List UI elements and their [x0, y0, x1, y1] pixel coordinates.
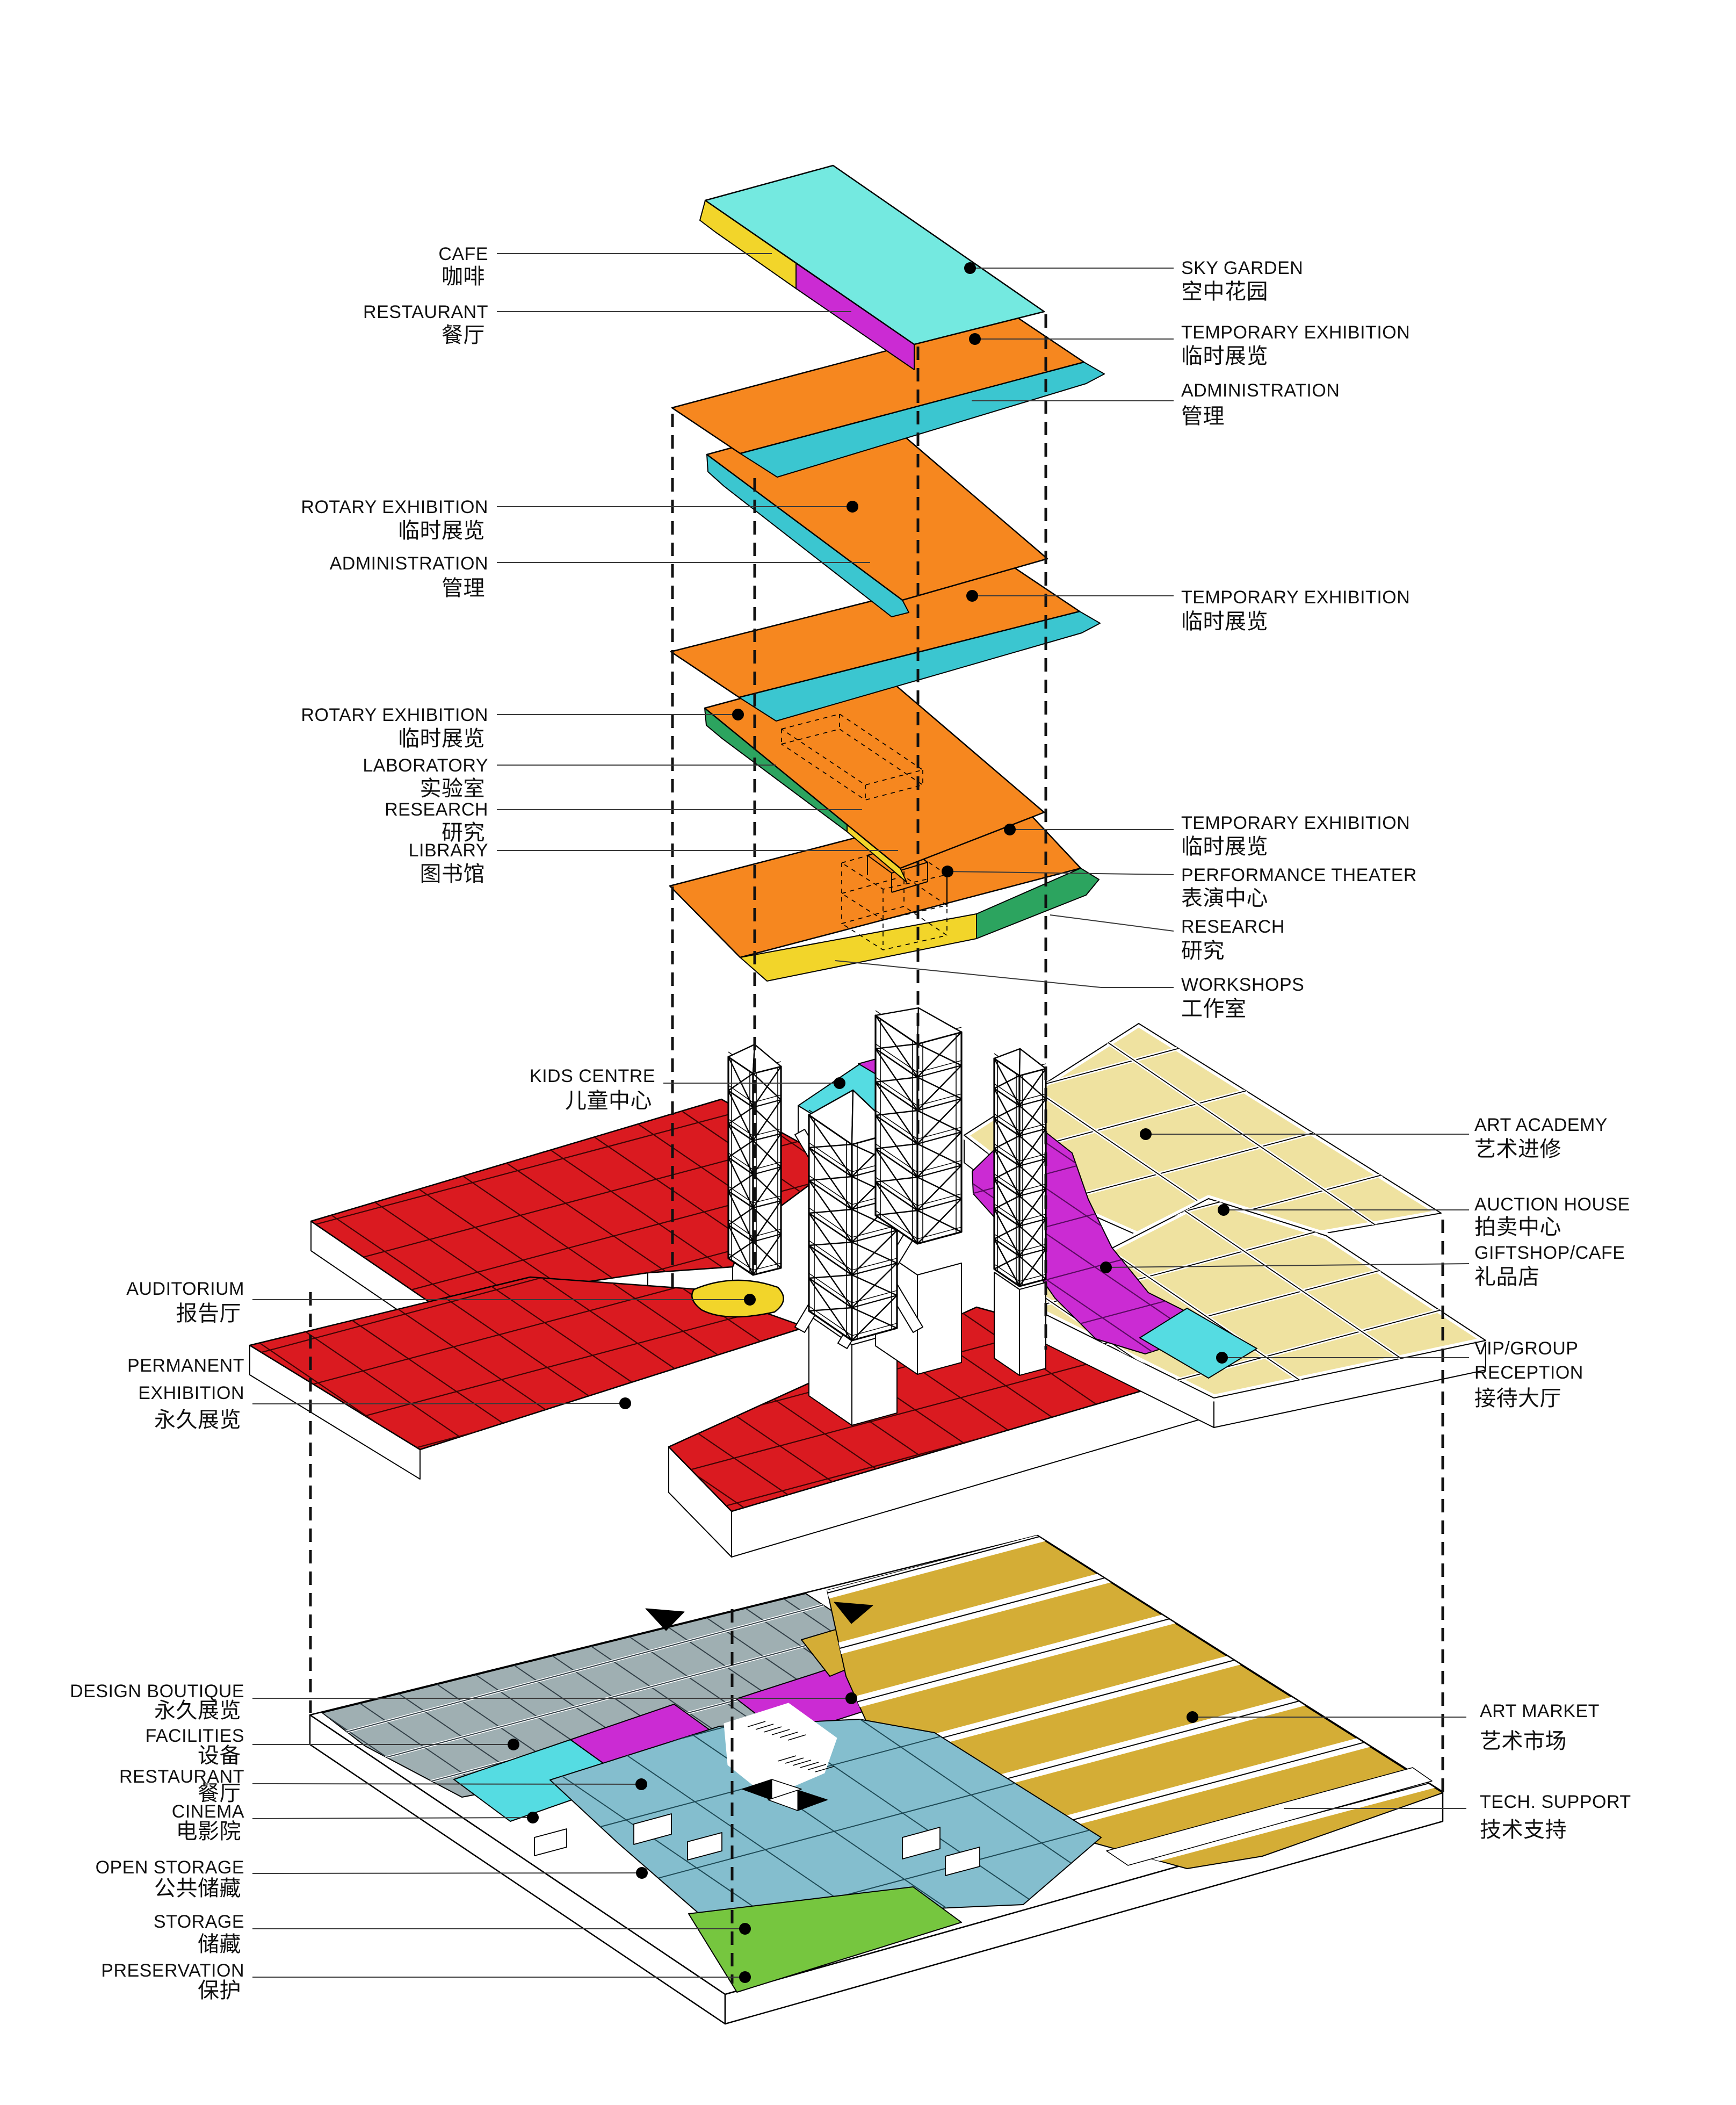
svg-text:临时展览: 临时展览: [1181, 835, 1268, 859]
svg-text:PERFORMANCE THEATER: PERFORMANCE THEATER: [1181, 865, 1417, 885]
svg-text:LIBRARY: LIBRARY: [409, 840, 488, 861]
svg-text:AUCTION HOUSE: AUCTION HOUSE: [1474, 1194, 1630, 1215]
svg-text:电影院: 电影院: [176, 1820, 242, 1843]
svg-text:KIDS CENTRE: KIDS CENTRE: [530, 1066, 655, 1086]
svg-text:艺术进修: 艺术进修: [1474, 1137, 1561, 1161]
svg-text:RESTAURANT: RESTAURANT: [363, 302, 488, 322]
svg-text:PERMANENT: PERMANENT: [127, 1356, 244, 1376]
svg-text:报告厅: 报告厅: [176, 1302, 242, 1325]
svg-text:TEMPORARY EXHIBITION: TEMPORARY EXHIBITION: [1181, 322, 1410, 343]
svg-text:咖啡: 咖啡: [442, 265, 485, 289]
svg-text:儿童中心: 儿童中心: [565, 1089, 652, 1113]
svg-text:RESEARCH: RESEARCH: [1181, 917, 1285, 937]
svg-text:ART ACADEMY: ART ACADEMY: [1474, 1115, 1608, 1135]
svg-text:FACILITIES: FACILITIES: [146, 1726, 245, 1746]
svg-text:RESEARCH: RESEARCH: [385, 799, 488, 820]
svg-text:拍卖中心: 拍卖中心: [1474, 1215, 1561, 1239]
svg-text:AUDITORIUM: AUDITORIUM: [126, 1279, 244, 1299]
svg-text:管理: 管理: [1181, 405, 1225, 428]
svg-text:餐厅: 餐厅: [442, 323, 485, 347]
svg-text:临时展览: 临时展览: [1181, 610, 1268, 633]
svg-text:设备: 设备: [198, 1744, 241, 1768]
svg-text:SKY GARDEN: SKY GARDEN: [1181, 258, 1303, 278]
svg-text:CAFE: CAFE: [438, 244, 488, 264]
svg-text:实验室: 实验室: [420, 777, 486, 801]
svg-text:永久展览: 永久展览: [154, 1699, 241, 1722]
svg-text:EXHIBITION: EXHIBITION: [138, 1383, 244, 1403]
svg-text:表演中心: 表演中心: [1181, 886, 1268, 910]
svg-text:ADMINISTRATION: ADMINISTRATION: [330, 553, 488, 574]
svg-text:技术支持: 技术支持: [1480, 1818, 1567, 1842]
svg-text:ROTARY EXHIBITION: ROTARY EXHIBITION: [301, 497, 488, 517]
svg-text:PRESERVATION: PRESERVATION: [101, 1960, 244, 1981]
svg-text:接待大厅: 接待大厅: [1474, 1387, 1561, 1410]
svg-text:永久展览: 永久展览: [154, 1408, 241, 1432]
svg-text:保护: 保护: [198, 1979, 241, 2002]
svg-text:ADMINISTRATION: ADMINISTRATION: [1181, 380, 1340, 401]
svg-text:TEMPORARY EXHIBITION: TEMPORARY EXHIBITION: [1181, 813, 1410, 833]
svg-text:图书馆: 图书馆: [420, 862, 486, 886]
svg-text:CINEMA: CINEMA: [172, 1801, 244, 1822]
svg-text:STORAGE: STORAGE: [154, 1912, 244, 1932]
svg-text:WORKSHOPS: WORKSHOPS: [1181, 975, 1304, 995]
svg-text:储藏: 储藏: [198, 1933, 241, 1956]
svg-text:工作室: 工作室: [1181, 997, 1247, 1021]
svg-text:GIFTSHOP/CAFE: GIFTSHOP/CAFE: [1474, 1243, 1625, 1263]
svg-text:TEMPORARY EXHIBITION: TEMPORARY EXHIBITION: [1181, 587, 1410, 608]
svg-text:礼品店: 礼品店: [1474, 1265, 1540, 1289]
svg-text:管理: 管理: [442, 576, 485, 600]
svg-text:VIP/GROUP: VIP/GROUP: [1474, 1338, 1578, 1359]
svg-text:LABORATORY: LABORATORY: [363, 755, 488, 776]
svg-text:公共储藏: 公共储藏: [154, 1877, 241, 1900]
svg-text:临时展览: 临时展览: [398, 519, 485, 543]
svg-text:TECH. SUPPORT: TECH. SUPPORT: [1480, 1792, 1631, 1812]
svg-text:空中花园: 空中花园: [1181, 280, 1268, 304]
svg-text:研究: 研究: [1181, 939, 1225, 963]
svg-text:ART MARKET: ART MARKET: [1480, 1701, 1600, 1721]
svg-text:临时展览: 临时展览: [1181, 344, 1268, 368]
svg-text:OPEN STORAGE: OPEN STORAGE: [96, 1857, 244, 1878]
svg-text:艺术市场: 艺术市场: [1480, 1729, 1567, 1753]
svg-text:ROTARY EXHIBITION: ROTARY EXHIBITION: [301, 705, 488, 725]
svg-text:临时展览: 临时展览: [398, 727, 485, 751]
svg-text:RECEPTION: RECEPTION: [1474, 1363, 1583, 1383]
